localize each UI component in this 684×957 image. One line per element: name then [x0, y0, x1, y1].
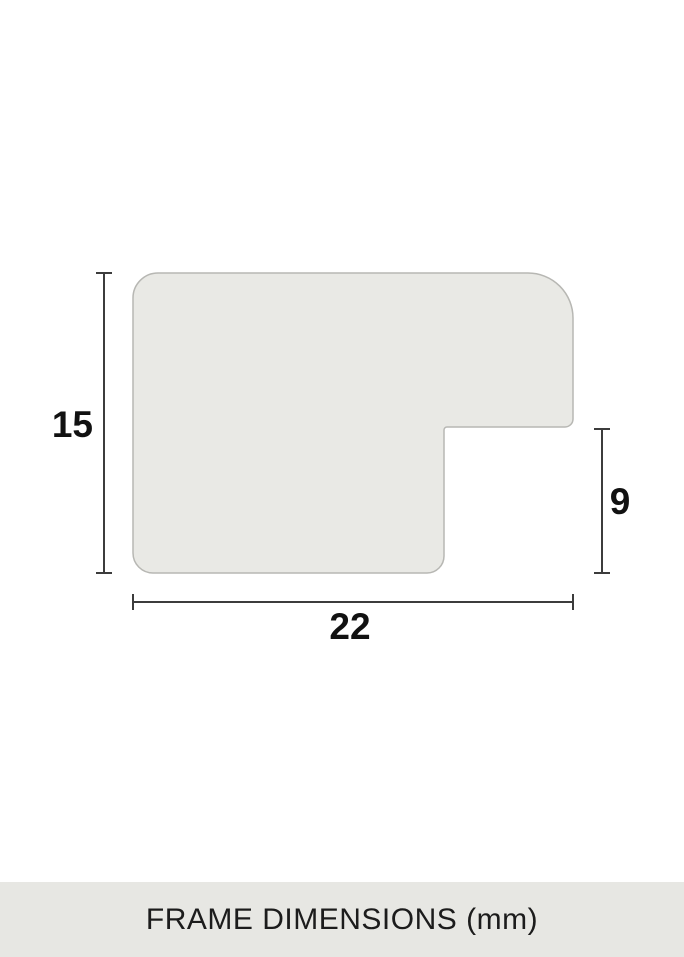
- height-dimension-line: [96, 273, 112, 573]
- width-dimension-label: 22: [300, 608, 400, 645]
- caption-text: FRAME DIMENSIONS (mm): [146, 903, 538, 937]
- profile-drawing: [0, 0, 684, 957]
- rabbet-dimension-label: 9: [595, 483, 645, 520]
- frame-dimensions-diagram: 15 22 9 FRAME DIMENSIONS (mm): [0, 0, 684, 957]
- height-dimension-label: 15: [43, 406, 93, 443]
- caption-band: FRAME DIMENSIONS (mm): [0, 882, 684, 957]
- frame-profile-shape: [133, 273, 573, 573]
